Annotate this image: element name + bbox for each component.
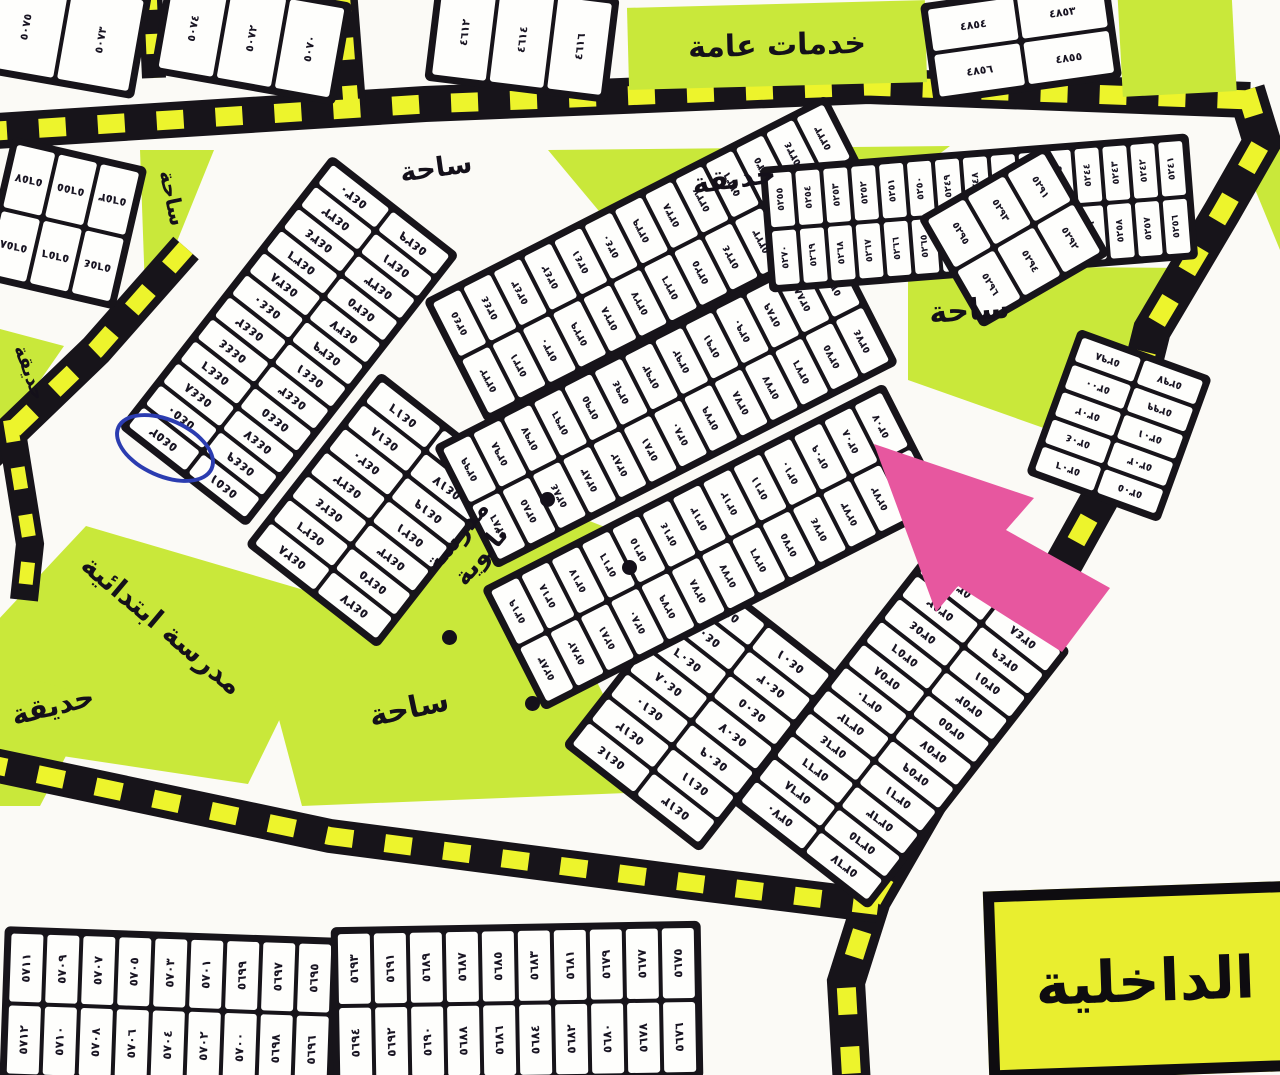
pink-arrow: [0, 0, 1280, 1075]
pink-arrow-shape: [874, 444, 1110, 652]
plot-map: خدمات عامة ٥٠٧٥٥٠٧٣٥٠٧٤٥٠٧٢٥٠٧٠٤٦١٢٤٦١٤٤…: [0, 0, 1280, 1075]
